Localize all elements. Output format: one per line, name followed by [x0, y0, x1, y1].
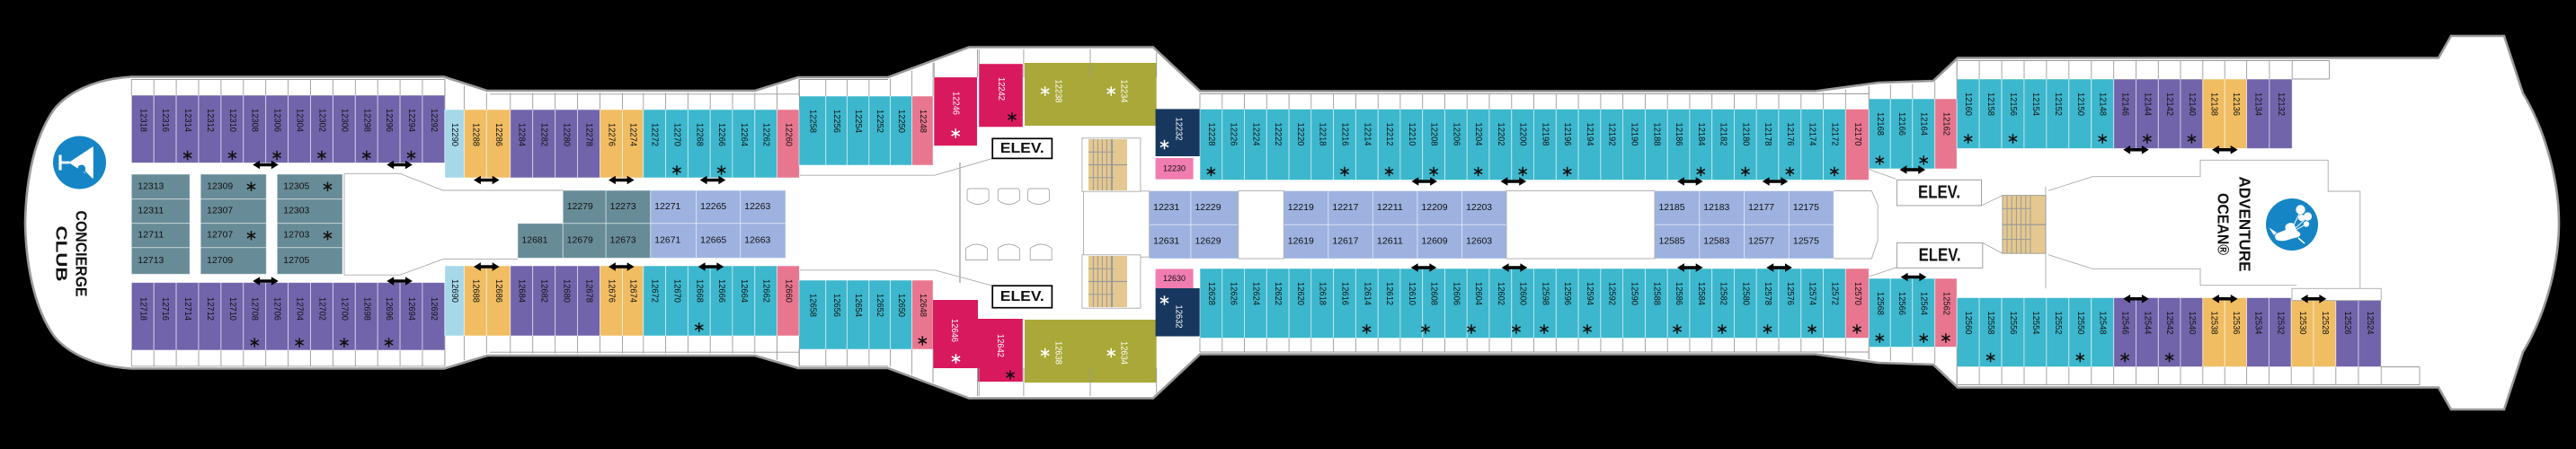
svg-text:12680: 12680 [562, 279, 572, 303]
svg-text:12572: 12572 [1829, 282, 1839, 305]
svg-text:12670: 12670 [672, 279, 682, 303]
svg-text:12305: 12305 [283, 181, 309, 191]
svg-text:12314: 12314 [182, 109, 192, 132]
svg-text:OCEAN®: OCEAN® [2215, 193, 2233, 255]
svg-text:12231: 12231 [1153, 203, 1179, 213]
svg-text:12308: 12308 [250, 109, 260, 132]
svg-text:12684: 12684 [517, 279, 527, 303]
svg-text:12568: 12568 [1875, 292, 1885, 315]
svg-text:12642: 12642 [995, 334, 1005, 357]
svg-text:12558: 12558 [1985, 312, 1995, 335]
svg-text:12544: 12544 [2142, 312, 2152, 335]
svg-text:12198: 12198 [1540, 123, 1550, 146]
svg-text:12671: 12671 [654, 236, 680, 246]
svg-text:12262: 12262 [761, 123, 771, 146]
svg-text:12596: 12596 [1562, 282, 1572, 305]
svg-text:12650: 12650 [896, 294, 906, 317]
svg-text:12232: 12232 [1174, 118, 1184, 141]
svg-text:12270: 12270 [672, 123, 682, 146]
svg-text:12200: 12200 [1518, 123, 1528, 146]
svg-text:12562: 12562 [1941, 292, 1950, 315]
svg-text:12679: 12679 [567, 236, 593, 246]
svg-text:12174: 12174 [1808, 123, 1817, 146]
svg-text:12220: 12220 [1295, 123, 1305, 146]
svg-text:12703: 12703 [283, 231, 309, 241]
svg-text:CONCIERGE: CONCIERGE [73, 211, 91, 297]
svg-text:12707: 12707 [207, 231, 233, 241]
svg-text:12564: 12564 [1919, 292, 1929, 315]
svg-text:12698: 12698 [361, 297, 371, 321]
svg-text:12234: 12234 [1119, 80, 1129, 103]
svg-text:12705: 12705 [283, 256, 309, 266]
svg-text:12583: 12583 [1703, 237, 1729, 247]
svg-text:12264: 12264 [739, 123, 749, 146]
svg-text:12146: 12146 [2120, 92, 2130, 116]
svg-text:12216: 12216 [1340, 123, 1350, 146]
svg-text:ELEV.: ELEV. [1000, 141, 1044, 156]
svg-text:12210: 12210 [1407, 123, 1417, 146]
svg-text:12538: 12538 [2209, 312, 2219, 335]
svg-text:12250: 12250 [896, 110, 906, 133]
svg-text:12272: 12272 [650, 123, 660, 146]
svg-text:12658: 12658 [807, 294, 817, 317]
svg-text:12646: 12646 [949, 319, 959, 342]
svg-text:12214: 12214 [1362, 123, 1372, 146]
svg-text:12604: 12604 [1473, 282, 1483, 305]
svg-text:12188: 12188 [1651, 123, 1661, 146]
svg-text:12208: 12208 [1429, 123, 1439, 146]
svg-text:12263: 12263 [744, 202, 770, 212]
svg-text:12312: 12312 [205, 109, 215, 132]
svg-text:12676: 12676 [607, 279, 617, 303]
svg-text:12140: 12140 [2187, 92, 2197, 116]
svg-text:12681: 12681 [522, 236, 548, 246]
svg-text:12203: 12203 [1466, 203, 1492, 213]
svg-text:12303: 12303 [283, 207, 309, 216]
svg-text:12556: 12556 [2008, 312, 2018, 335]
svg-text:12614: 12614 [1362, 282, 1372, 305]
svg-text:12158: 12158 [1985, 92, 1995, 116]
svg-text:12282: 12282 [539, 123, 549, 146]
svg-text:12552: 12552 [2053, 312, 2063, 335]
svg-text:12288: 12288 [470, 123, 480, 146]
svg-text:12132: 12132 [2276, 92, 2286, 116]
svg-text:12609: 12609 [1422, 237, 1448, 247]
svg-text:12152: 12152 [2053, 92, 2063, 116]
svg-text:12265: 12265 [700, 202, 726, 212]
svg-text:12184: 12184 [1696, 123, 1706, 146]
svg-text:12628: 12628 [1206, 282, 1216, 305]
svg-text:12708: 12708 [250, 297, 260, 321]
svg-text:12138: 12138 [2209, 92, 2219, 116]
svg-text:12706: 12706 [272, 297, 282, 321]
svg-text:12618: 12618 [1318, 282, 1328, 305]
svg-text:12690: 12690 [449, 279, 459, 303]
svg-text:12230: 12230 [1163, 164, 1186, 174]
svg-text:12674: 12674 [628, 279, 638, 303]
svg-text:12313: 12313 [138, 181, 164, 191]
svg-text:12166: 12166 [1896, 112, 1906, 136]
svg-text:12652: 12652 [875, 294, 884, 317]
svg-text:12212: 12212 [1384, 123, 1394, 146]
svg-text:12530: 12530 [2297, 312, 2307, 335]
svg-text:12622: 12622 [1273, 282, 1283, 305]
svg-text:12702: 12702 [316, 297, 326, 321]
svg-text:12700: 12700 [339, 297, 349, 321]
svg-text:12577: 12577 [1748, 237, 1774, 247]
svg-text:12672: 12672 [650, 279, 660, 303]
svg-text:12218: 12218 [1318, 123, 1328, 146]
svg-text:12182: 12182 [1719, 123, 1728, 146]
svg-text:12711: 12711 [138, 231, 164, 241]
svg-text:12204: 12204 [1473, 123, 1483, 146]
svg-text:12150: 12150 [2075, 92, 2085, 116]
svg-text:12578: 12578 [1763, 282, 1772, 305]
svg-text:12574: 12574 [1808, 282, 1817, 305]
svg-text:12606: 12606 [1451, 282, 1461, 305]
svg-text:12134: 12134 [2253, 92, 2263, 116]
svg-text:12678: 12678 [584, 279, 594, 303]
svg-text:12164: 12164 [1919, 112, 1929, 136]
svg-text:12540: 12540 [2187, 312, 2197, 335]
svg-text:12238: 12238 [1053, 80, 1062, 103]
svg-text:12526: 12526 [2342, 312, 2352, 335]
svg-text:12629: 12629 [1195, 237, 1221, 247]
svg-text:12710: 12710 [227, 297, 237, 321]
svg-text:12619: 12619 [1288, 237, 1314, 247]
svg-text:12611: 12611 [1377, 237, 1403, 247]
svg-text:12718: 12718 [138, 297, 147, 321]
svg-text:12307: 12307 [207, 207, 233, 216]
svg-text:12177: 12177 [1748, 203, 1774, 213]
svg-text:12211: 12211 [1377, 203, 1403, 213]
svg-text:12300: 12300 [339, 109, 349, 132]
svg-text:12266: 12266 [716, 123, 726, 146]
svg-text:12304: 12304 [295, 109, 305, 132]
svg-text:12585: 12585 [1659, 237, 1685, 247]
svg-text:12206: 12206 [1451, 123, 1461, 146]
svg-text:12156: 12156 [2008, 92, 2018, 116]
svg-text:12666: 12666 [716, 279, 726, 303]
svg-text:12160: 12160 [1963, 92, 1973, 116]
svg-text:12217: 12217 [1332, 203, 1358, 213]
svg-text:12620: 12620 [1295, 282, 1305, 305]
svg-text:12612: 12612 [1384, 282, 1394, 305]
svg-text:12254: 12254 [853, 110, 863, 133]
svg-text:12610: 12610 [1407, 282, 1417, 305]
svg-text:12590: 12590 [1630, 282, 1639, 305]
svg-text:12656: 12656 [831, 294, 841, 317]
svg-text:12256: 12256 [831, 110, 841, 133]
svg-text:12229: 12229 [1195, 203, 1221, 213]
svg-text:12292: 12292 [429, 109, 439, 132]
svg-text:12631: 12631 [1153, 237, 1179, 247]
svg-text:12252: 12252 [875, 110, 884, 133]
svg-text:12172: 12172 [1829, 123, 1839, 146]
svg-text:12194: 12194 [1585, 123, 1594, 146]
svg-text:12175: 12175 [1793, 203, 1819, 213]
svg-text:12279: 12279 [567, 202, 593, 212]
svg-text:12714: 12714 [182, 297, 192, 321]
svg-text:12594: 12594 [1585, 282, 1594, 305]
svg-text:12575: 12575 [1793, 237, 1819, 247]
svg-text:12696: 12696 [384, 297, 394, 321]
svg-text:12713: 12713 [138, 256, 164, 266]
svg-text:ADVENTURE: ADVENTURE [2236, 177, 2254, 272]
svg-text:12712: 12712 [205, 297, 215, 321]
svg-text:ELEV.: ELEV. [1000, 289, 1044, 304]
svg-text:12638: 12638 [1053, 341, 1062, 365]
svg-text:12570: 12570 [1852, 282, 1862, 305]
svg-text:12222: 12222 [1273, 123, 1283, 146]
svg-text:12709: 12709 [207, 256, 233, 266]
svg-text:12664: 12664 [739, 279, 749, 303]
svg-text:12148: 12148 [2098, 92, 2108, 116]
svg-text:12576: 12576 [1785, 282, 1795, 305]
svg-text:12673: 12673 [610, 236, 636, 246]
svg-text:12180: 12180 [1740, 123, 1750, 146]
svg-text:12634: 12634 [1119, 341, 1129, 365]
svg-text:12686: 12686 [493, 279, 503, 303]
svg-text:12176: 12176 [1785, 123, 1795, 146]
svg-text:12694: 12694 [406, 297, 416, 321]
svg-text:12588: 12588 [1651, 282, 1661, 305]
svg-text:12550: 12550 [2075, 312, 2085, 335]
svg-text:12273: 12273 [610, 202, 636, 212]
svg-text:12586: 12586 [1674, 282, 1683, 305]
svg-text:12228: 12228 [1206, 123, 1216, 146]
svg-text:12219: 12219 [1288, 203, 1314, 213]
svg-text:12302: 12302 [316, 109, 326, 132]
svg-text:12624: 12624 [1250, 282, 1260, 305]
svg-text:12617: 12617 [1332, 237, 1358, 247]
svg-text:12192: 12192 [1607, 123, 1617, 146]
svg-text:12268: 12268 [694, 123, 704, 146]
svg-text:12183: 12183 [1703, 203, 1729, 213]
svg-text:12632: 12632 [1174, 305, 1184, 329]
svg-text:12196: 12196 [1562, 123, 1572, 146]
svg-text:12294: 12294 [406, 109, 416, 132]
svg-text:12528: 12528 [2320, 312, 2330, 335]
svg-text:12582: 12582 [1719, 282, 1728, 305]
svg-text:12202: 12202 [1496, 123, 1506, 146]
svg-text:12584: 12584 [1696, 282, 1706, 305]
svg-text:12260: 12260 [784, 123, 794, 146]
svg-text:12630: 12630 [1163, 274, 1186, 284]
svg-text:12546: 12546 [2120, 312, 2130, 335]
svg-text:12136: 12136 [2231, 92, 2241, 116]
svg-text:12692: 12692 [429, 297, 439, 321]
svg-text:12209: 12209 [1422, 203, 1448, 213]
svg-text:12626: 12626 [1229, 282, 1239, 305]
svg-text:12316: 12316 [160, 109, 170, 132]
svg-text:12602: 12602 [1496, 282, 1506, 305]
svg-text:CLUB: CLUB [53, 226, 71, 282]
svg-text:12246: 12246 [951, 92, 961, 115]
svg-text:12580: 12580 [1740, 282, 1750, 305]
svg-text:12144: 12144 [2142, 92, 2152, 116]
svg-text:12566: 12566 [1896, 292, 1906, 315]
svg-text:12162: 12162 [1941, 112, 1950, 136]
svg-text:12603: 12603 [1466, 237, 1492, 247]
svg-text:12648: 12648 [918, 294, 928, 317]
svg-text:12608: 12608 [1429, 282, 1439, 305]
svg-text:12185: 12185 [1659, 203, 1685, 213]
svg-text:12224: 12224 [1250, 123, 1260, 146]
svg-text:12298: 12298 [361, 109, 371, 132]
svg-text:ELEV.: ELEV. [1918, 183, 1960, 203]
svg-text:12654: 12654 [853, 294, 863, 317]
svg-text:12560: 12560 [1963, 312, 1973, 335]
svg-text:12536: 12536 [2231, 312, 2241, 335]
svg-text:12532: 12532 [2275, 312, 2285, 335]
svg-text:12554: 12554 [2030, 312, 2040, 335]
svg-text:12660: 12660 [784, 279, 794, 303]
svg-text:12290: 12290 [449, 123, 459, 146]
svg-text:12280: 12280 [562, 123, 572, 146]
svg-text:12311: 12311 [138, 207, 164, 216]
svg-text:12548: 12548 [2098, 312, 2108, 335]
svg-text:12168: 12168 [1875, 112, 1885, 136]
svg-text:12178: 12178 [1763, 123, 1772, 146]
svg-text:12600: 12600 [1518, 282, 1528, 305]
svg-text:12154: 12154 [2030, 92, 2040, 116]
svg-text:12682: 12682 [539, 279, 549, 303]
svg-text:12271: 12271 [654, 202, 680, 212]
svg-text:12592: 12592 [1607, 282, 1617, 305]
svg-text:12668: 12668 [694, 279, 704, 303]
svg-text:12662: 12662 [761, 279, 771, 303]
svg-text:12286: 12286 [493, 123, 503, 146]
svg-text:12318: 12318 [138, 109, 147, 132]
svg-text:12242: 12242 [996, 77, 1006, 101]
svg-text:12142: 12142 [2164, 92, 2174, 116]
svg-text:12306: 12306 [272, 109, 282, 132]
svg-text:12190: 12190 [1630, 123, 1639, 146]
svg-text:12616: 12616 [1340, 282, 1350, 305]
svg-text:12688: 12688 [470, 279, 480, 303]
svg-text:12310: 12310 [227, 109, 237, 132]
svg-text:12278: 12278 [584, 123, 594, 146]
svg-text:ELEV.: ELEV. [1919, 245, 1961, 265]
svg-text:12665: 12665 [700, 236, 726, 246]
svg-text:12296: 12296 [384, 109, 394, 132]
svg-text:12186: 12186 [1674, 123, 1683, 146]
svg-text:12248: 12248 [918, 110, 928, 133]
svg-text:12276: 12276 [607, 123, 617, 146]
svg-text:12226: 12226 [1229, 123, 1239, 146]
svg-text:12309: 12309 [207, 181, 233, 191]
svg-text:12534: 12534 [2253, 312, 2263, 335]
svg-text:12284: 12284 [517, 123, 527, 146]
svg-text:12524: 12524 [2365, 312, 2375, 335]
svg-text:12542: 12542 [2164, 312, 2174, 335]
svg-text:12716: 12716 [160, 297, 170, 321]
svg-text:12170: 12170 [1852, 123, 1862, 146]
svg-text:12274: 12274 [628, 123, 638, 146]
svg-text:12258: 12258 [807, 110, 817, 133]
svg-text:12663: 12663 [744, 236, 770, 246]
svg-text:12598: 12598 [1540, 282, 1550, 305]
svg-text:12704: 12704 [295, 297, 305, 321]
